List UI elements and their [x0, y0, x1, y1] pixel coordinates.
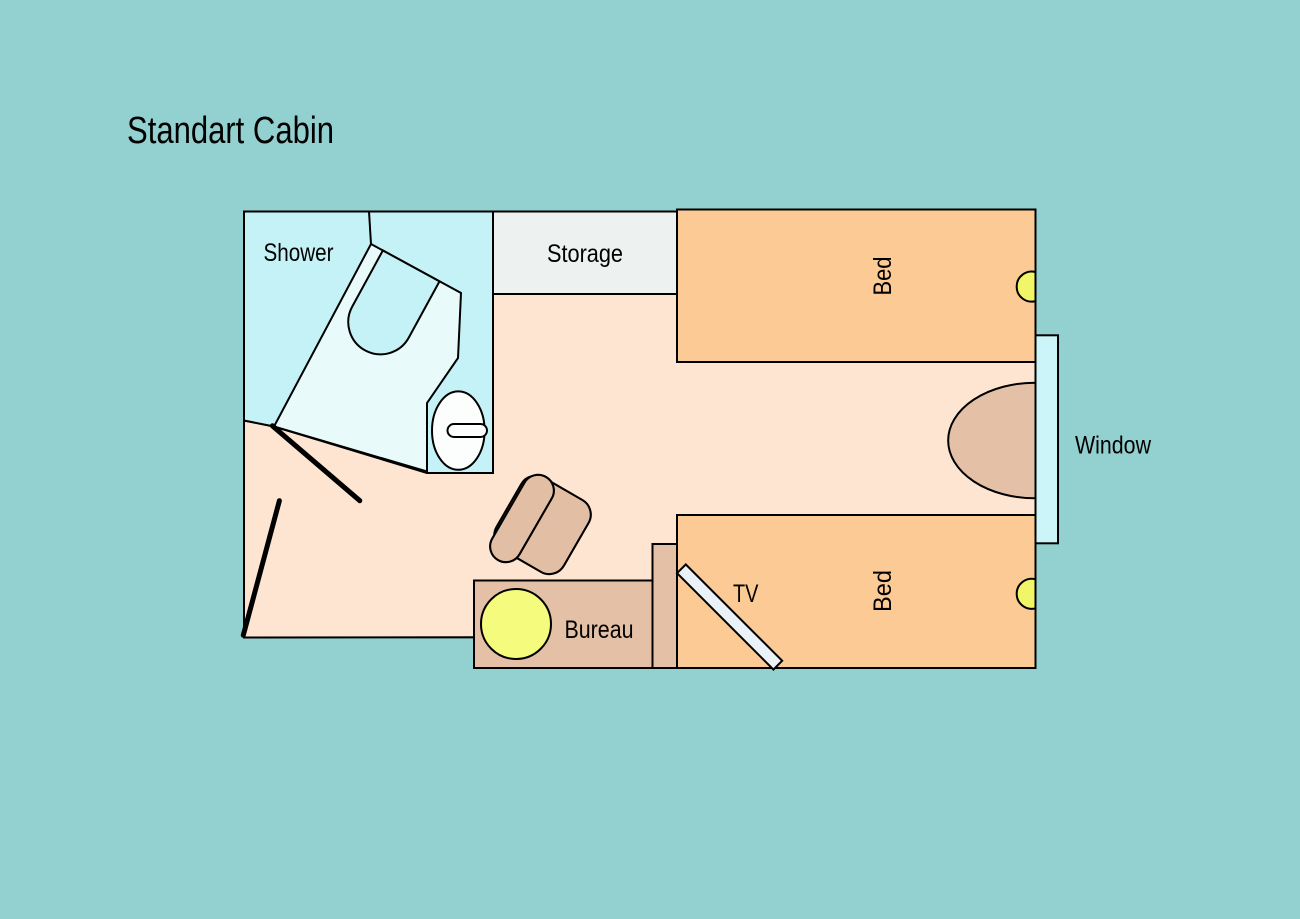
svg-text:Storage: Storage — [547, 240, 623, 268]
svg-text:Shower: Shower — [264, 239, 334, 267]
svg-text:TV: TV — [733, 580, 759, 608]
svg-text:Bureau: Bureau — [565, 616, 634, 644]
svg-text:Standart Cabin: Standart Cabin — [127, 110, 334, 152]
svg-text:Window: Window — [1075, 432, 1152, 460]
svg-text:Bed: Bed — [869, 257, 897, 296]
svg-text:Bed: Bed — [869, 570, 897, 612]
